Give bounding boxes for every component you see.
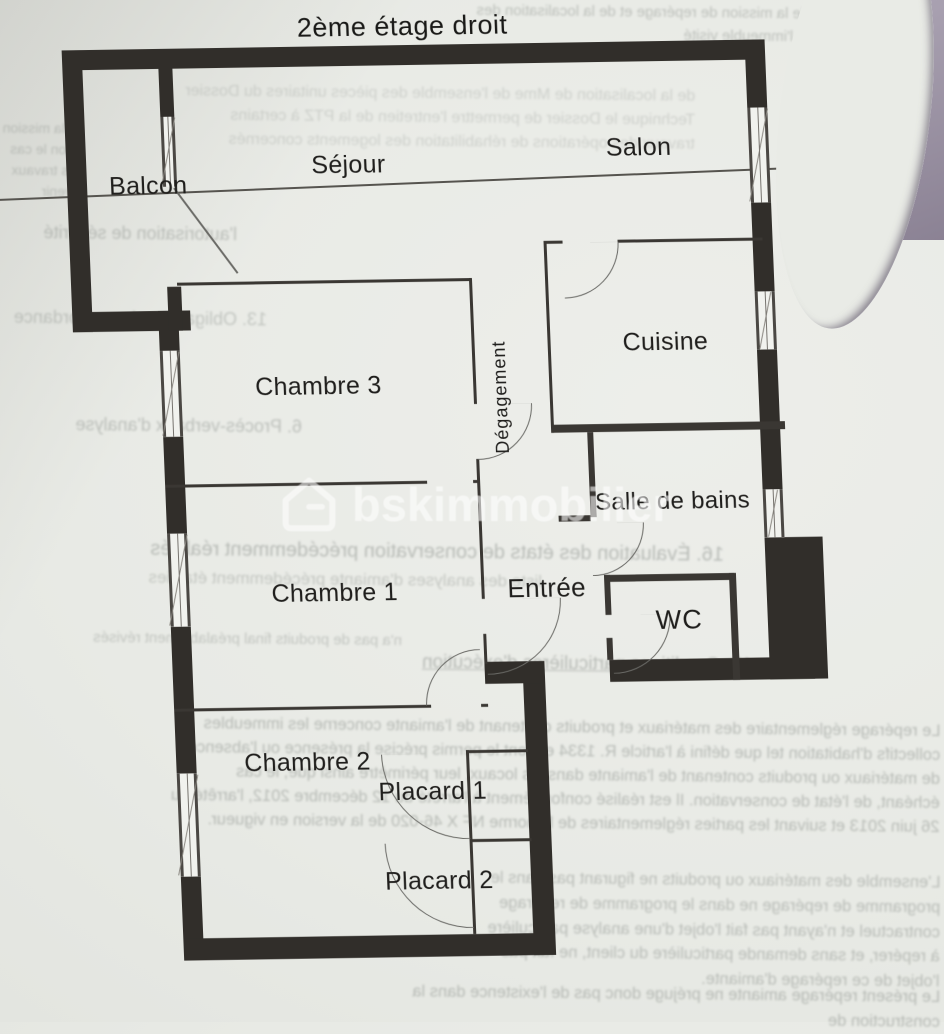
wall-balcony-left	[62, 50, 93, 332]
window-salon	[747, 107, 771, 202]
wall-corridor-left	[469, 278, 477, 404]
room-label-salon: Salon	[605, 134, 672, 163]
room-label-chambre3: Chambre 3	[255, 372, 382, 401]
window-chambre1	[167, 534, 191, 627]
door-arc-entree	[485, 598, 564, 675]
window-chambre2	[177, 773, 201, 876]
door-arc-cuisine	[563, 242, 621, 299]
photographed-floorplan-page: { "title": "2ème étage droit", "watermar…	[0, 0, 944, 1022]
wall-placard1-top	[466, 749, 528, 753]
wall-salon-cuisine	[617, 237, 762, 242]
room-label-degagement: Dégagement	[489, 340, 513, 453]
room-label-chambre2: Chambre 2	[244, 749, 371, 778]
wall-left	[171, 626, 197, 773]
room-label-placard1: Placard 1	[378, 778, 487, 807]
room-label-placard2: Placard 2	[385, 867, 494, 896]
wall-bottom	[183, 933, 556, 961]
window-chambre3	[160, 351, 183, 437]
wall-chambre1-chambre2	[174, 705, 431, 712]
wall-balcony-divider	[158, 69, 174, 117]
wall-wc-top	[604, 573, 734, 582]
wall-right	[757, 349, 783, 489]
wall-right	[745, 39, 768, 107]
room-label-balcon: Balcon	[109, 172, 188, 201]
room-label-sejour: Séjour	[311, 151, 386, 180]
room-label-cuisine: Cuisine	[622, 328, 709, 357]
room-label-chambre1: Chambre 1	[271, 579, 398, 608]
wall-balcony-divider	[167, 287, 183, 331]
watermark: bskimmobilier	[280, 476, 671, 532]
watermark-house-g-logo	[280, 476, 338, 532]
wall-right	[751, 202, 775, 291]
wall-chambre1-chambre2	[481, 704, 488, 707]
watermark-text: bskimmobilier	[352, 477, 671, 532]
page-title: 2ème étage droit	[296, 9, 508, 43]
wall-cuisine-bottom	[551, 421, 785, 433]
wall-sejour-chambre3	[177, 278, 471, 286]
room-label-entree: Entrée	[507, 573, 587, 603]
wall-cuisine-left	[544, 243, 555, 433]
window-cuisine	[755, 291, 777, 349]
wall-right-thick	[765, 537, 829, 680]
door-arc-chambre1	[424, 649, 482, 706]
wall-placard-divider	[469, 838, 531, 842]
door-leaf-balcon	[173, 188, 238, 274]
room-label-wc: WC	[655, 605, 703, 635]
wall-top	[75, 40, 756, 71]
window-salle-de-bains	[763, 489, 785, 537]
wall-salon-cuisine	[543, 241, 562, 244]
wall-lower-right	[523, 681, 556, 955]
